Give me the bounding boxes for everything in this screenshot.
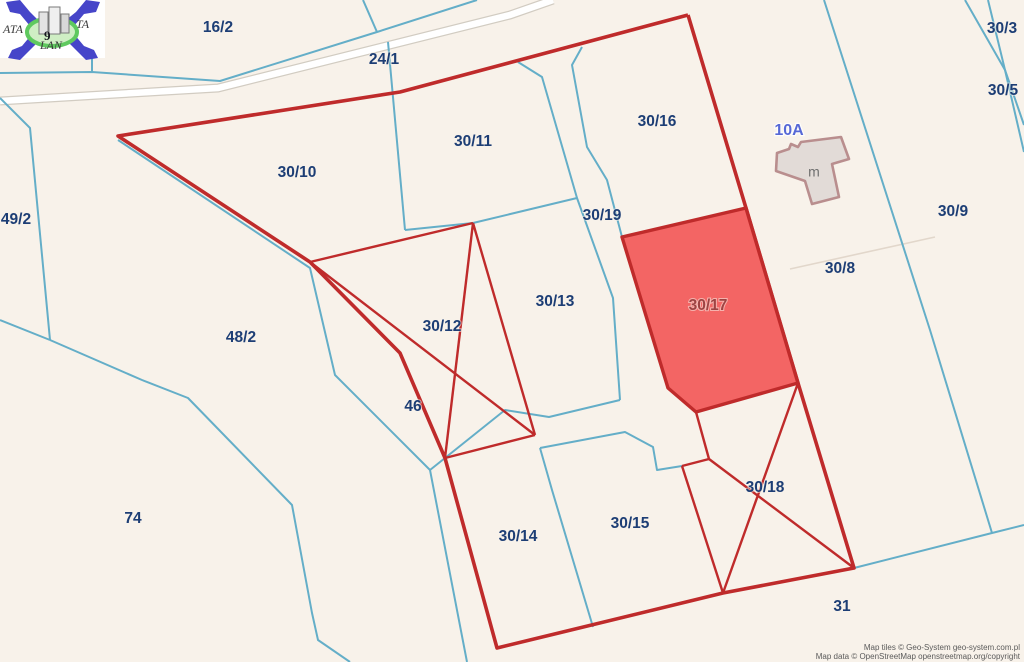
parcel-label-49-2: 49/2 (1, 211, 31, 228)
offer-boundary-inner-2 (473, 223, 535, 435)
offer-boundary-inner-5 (696, 412, 709, 459)
parcel-label-30-14: 30/14 (499, 528, 538, 545)
parcel-label-m: m (808, 164, 820, 180)
parcel-label-30-16: 30/16 (638, 113, 677, 130)
cadastral-line-divider-30-14-30-15 (540, 448, 593, 627)
logo-text-bottom: LAN (39, 38, 63, 52)
parcel-label-30-10: 30/10 (278, 164, 317, 181)
parcel-label-30-13: 30/13 (536, 293, 575, 310)
parcel-label-30-19: 30/19 (583, 207, 622, 224)
offer-boundary-inner-1 (445, 223, 473, 458)
parcel-label-46: 46 (404, 398, 422, 415)
offer-boundary-inner-7 (682, 466, 723, 593)
parcel-label-30-3: 30/3 (987, 20, 1018, 37)
cadastral-line-boundary-30-11-30-13 (405, 198, 577, 230)
cadastral-line-parcel-74-curve (50, 340, 350, 662)
cadastral-line-north-branch (363, 0, 377, 32)
map-attribution: Map tiles © Geo-System geo-system.com.pl… (816, 643, 1020, 661)
parcel-label-30-18: 30/18 (746, 479, 785, 496)
cadastral-line-boundary-30-13-south (430, 400, 620, 470)
offer-boundary-inner-0 (310, 223, 473, 262)
offer-boundary-inner-8 (709, 459, 854, 568)
parcel-label-74: 74 (124, 510, 142, 527)
cadastral-line-boundary-30-10-30-11 (388, 42, 405, 230)
agency-watermark-logo: 9 ATA TA LAN (0, 0, 110, 62)
parcel-label-16-2: 16/2 (203, 19, 233, 36)
cadastral-map-canvas[interactable]: 16/224/130/1130/1630/330/530/1049/230/19… (0, 0, 1024, 662)
parcel-label-30-5: 30/5 (988, 82, 1019, 99)
parcel-label-31: 31 (833, 598, 851, 615)
parcel-label-30-12: 30/12 (423, 318, 462, 335)
parcel-label-10A: 10A (774, 122, 804, 139)
parcel-label-24-1: 24/1 (369, 51, 400, 68)
logo-text-left: ATA (2, 22, 24, 36)
attribution-tiles: Map tiles © Geo-System geo-system.com.pl (816, 643, 1020, 652)
cadastral-line-neck-30-15 (540, 432, 682, 470)
cadastral-line-boundary-31-north (854, 525, 1024, 568)
cadastral-map-viewport[interactable]: 16/224/130/1130/1630/330/530/1049/230/19… (0, 0, 1024, 662)
parcel-label-30-17: 30/17 (689, 297, 728, 314)
parcel-label-30-9: 30/9 (938, 203, 969, 220)
offer-boundary-inner-6 (682, 459, 709, 466)
cadastral-line-west-edge-branch (0, 320, 50, 340)
boundary-30-8-30-9 (790, 237, 935, 269)
cadastral-line-driveway-left (518, 62, 620, 400)
parcel-label-30-11: 30/11 (454, 133, 492, 150)
cadastral-line-strip-30-3-a (965, 0, 1024, 125)
parcel-label-30-8: 30/8 (825, 260, 856, 277)
parcel-label-30-15: 30/15 (611, 515, 650, 532)
logo-text-right: TA (76, 17, 90, 31)
attribution-data: Map data © OpenStreetMap openstreetmap.o… (816, 652, 1020, 661)
parcel-label-48-2: 48/2 (226, 329, 256, 346)
